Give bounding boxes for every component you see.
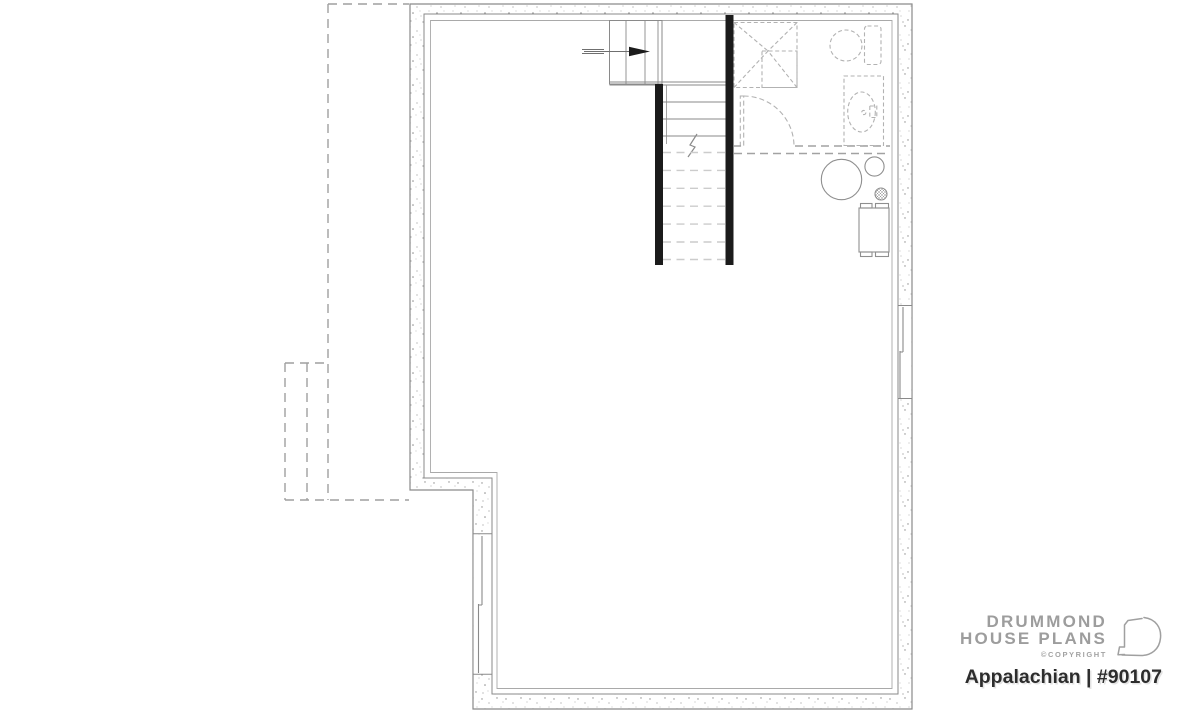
floor-drain <box>875 188 887 200</box>
brand-copyright: ©COPYRIGHT <box>960 650 1107 659</box>
electrical-panel <box>859 204 889 257</box>
stair-wall-right <box>726 15 734 265</box>
vanity-sink-dashed <box>844 76 884 146</box>
brand-line-1: DRUMMOND <box>960 613 1107 630</box>
water-heater-circle <box>821 159 861 199</box>
staircase <box>582 15 734 265</box>
window-left <box>473 534 492 674</box>
window-right <box>898 306 912 399</box>
small-tank-circle <box>865 157 884 176</box>
brand-line-2: HOUSE PLANS <box>960 630 1107 647</box>
plan-title: Appalachian | #90107 <box>960 666 1162 689</box>
floor-plan-drawing <box>0 0 1200 711</box>
mechanical-equipment <box>821 157 889 257</box>
title-block: DRUMMOND HOUSE PLANS ©COPYRIGHT Appalach… <box>960 613 1162 689</box>
toilet-dashed <box>830 26 881 65</box>
stair-break-line <box>688 134 697 157</box>
porch-outline-dashed <box>285 4 409 500</box>
bathroom-wall-dashed <box>734 146 890 154</box>
drummond-logo-icon <box>1114 615 1162 659</box>
floor-plan-page: DRUMMOND HOUSE PLANS ©COPYRIGHT Appalach… <box>0 0 1200 711</box>
stair-direction-arrow <box>582 47 650 56</box>
door-swing-dashed <box>740 96 794 146</box>
future-bathroom <box>734 23 890 154</box>
shower-dashed <box>734 23 797 88</box>
stair-wall-left <box>655 84 663 265</box>
